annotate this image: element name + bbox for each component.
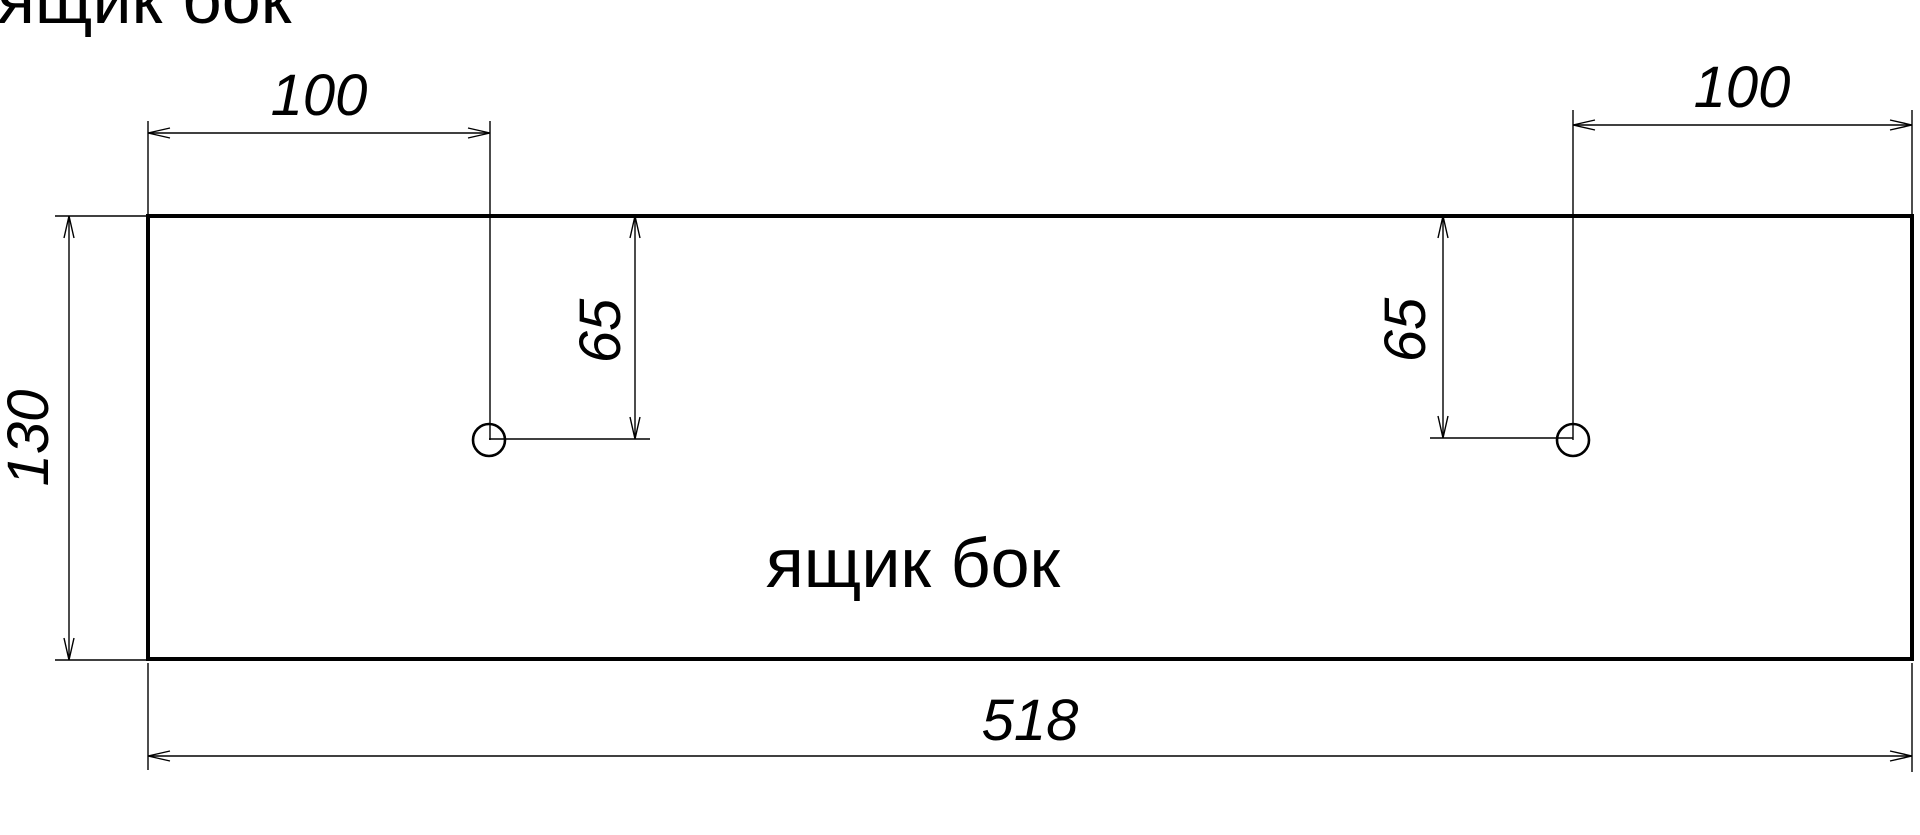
dim-hole-right-x: 100 [1573, 55, 1912, 440]
dim-hole-left-x: 100 [148, 63, 490, 440]
dim-hole-right-y: 65 [1373, 216, 1573, 438]
dim-value-hole-left-x: 100 [271, 63, 368, 128]
dim-value-panel-width: 518 [982, 688, 1079, 753]
dim-panel-width: 518 [148, 663, 1912, 772]
dim-value-hole-left-y: 65 [568, 298, 633, 363]
dim-hole-left-y: 65 [489, 216, 650, 439]
dim-panel-height: 130 [0, 216, 148, 660]
hole-left [473, 424, 505, 456]
technical-drawing: ящик бок 100 100 [0, 0, 1920, 835]
part-label: ящик бок [766, 524, 1061, 602]
dim-value-panel-height: 130 [0, 390, 61, 487]
drawing-title: ящик бок [0, 0, 292, 38]
dim-value-hole-right-y: 65 [1373, 297, 1438, 362]
dim-value-hole-right-x: 100 [1694, 55, 1791, 120]
drawing-canvas: ящик бок 100 100 [0, 0, 1920, 835]
